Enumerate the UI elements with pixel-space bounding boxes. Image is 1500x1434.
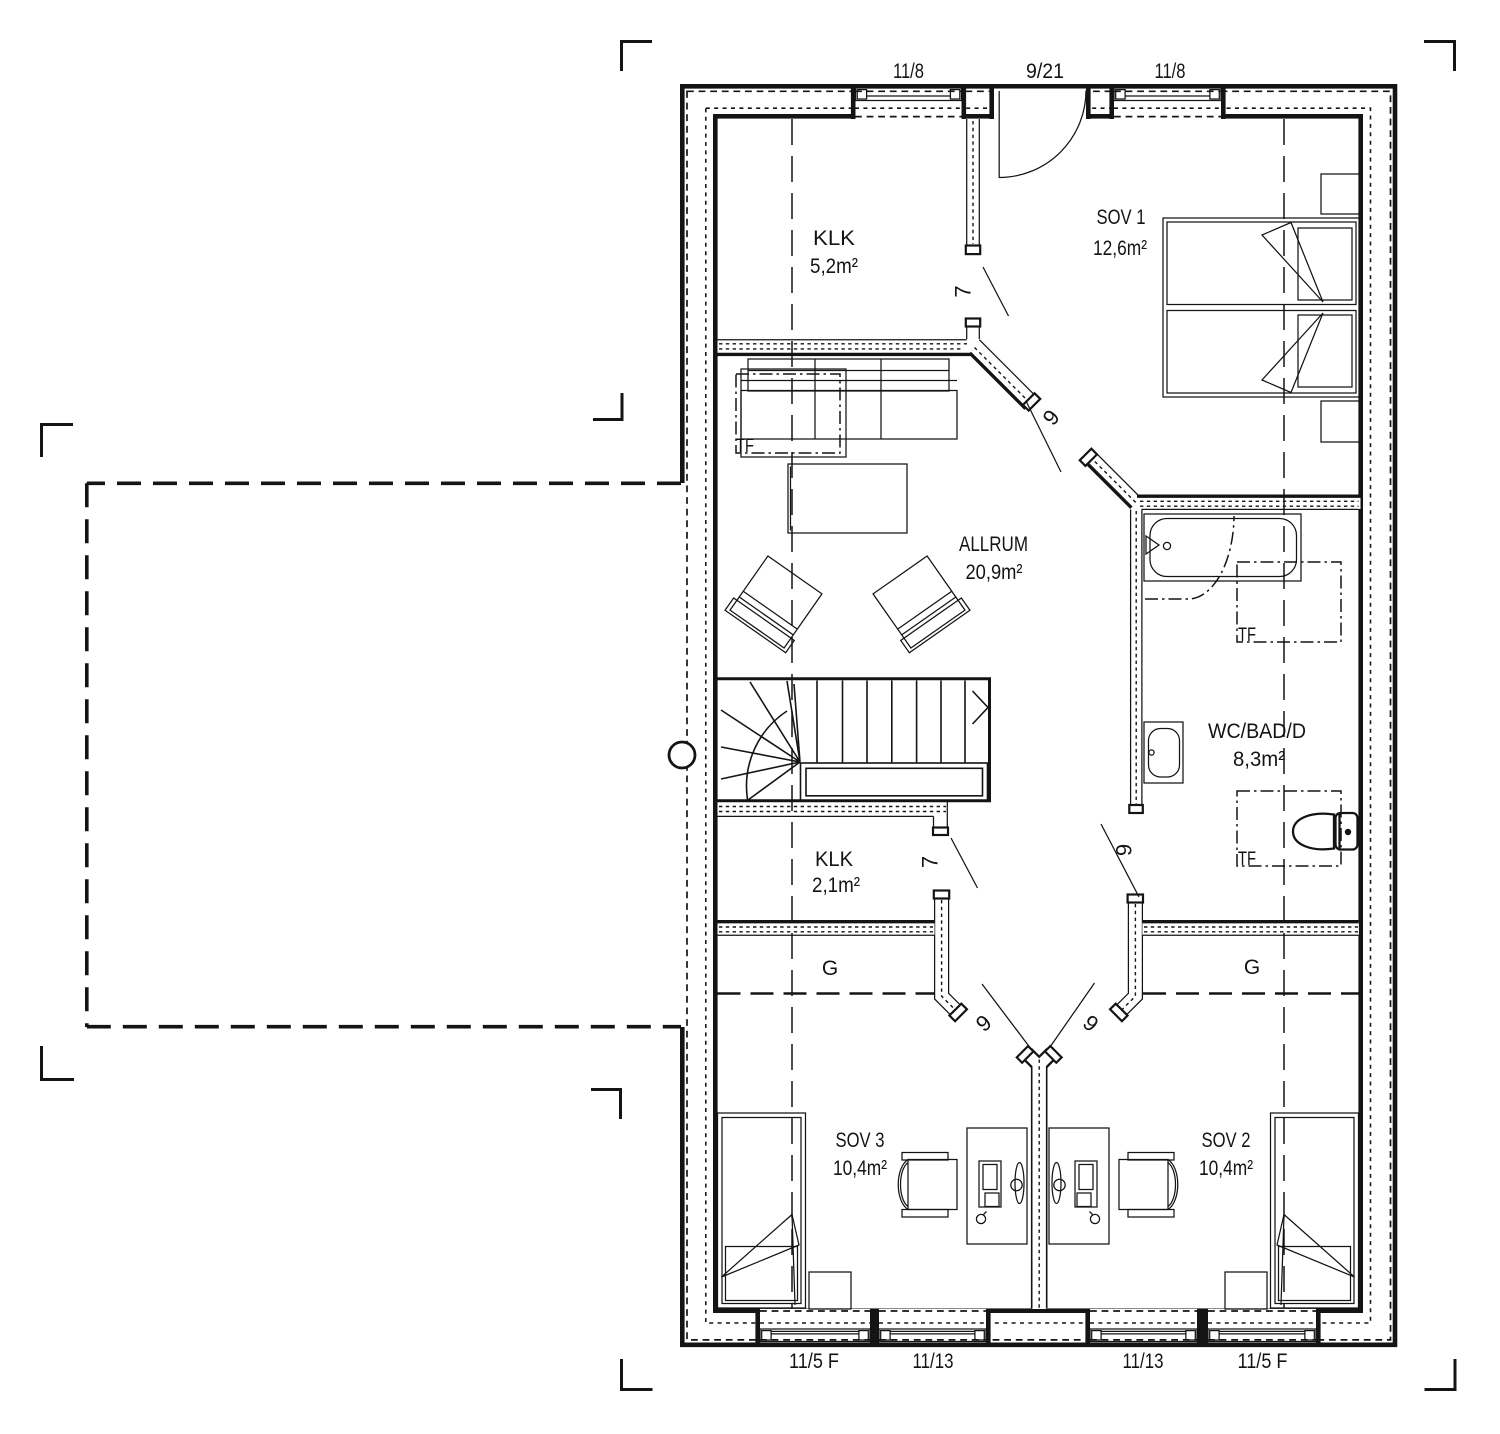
svg-text:SOV 3: SOV 3: [836, 1129, 885, 1152]
svg-text:7: 7: [951, 285, 976, 297]
svg-text:SOV 2: SOV 2: [1202, 1129, 1251, 1152]
svg-text:9: 9: [1112, 844, 1137, 856]
svg-text:KLK: KLK: [815, 848, 853, 871]
svg-text:9/21: 9/21: [1026, 60, 1064, 83]
svg-text:ALLRUM: ALLRUM: [959, 533, 1028, 556]
svg-text:11/13: 11/13: [1123, 1350, 1164, 1373]
svg-text:7: 7: [918, 856, 943, 868]
svg-text:TF: TF: [736, 436, 754, 457]
svg-text:11/5 F: 11/5 F: [1238, 1350, 1288, 1373]
svg-text:5,2m²: 5,2m²: [810, 255, 858, 278]
svg-text:2,1m²: 2,1m²: [812, 874, 860, 897]
svg-text:KLK: KLK: [813, 227, 855, 250]
svg-text:8,3m²: 8,3m²: [1233, 748, 1285, 771]
svg-text:20,9m²: 20,9m²: [966, 561, 1023, 584]
svg-text:12,6m²: 12,6m²: [1093, 237, 1147, 260]
svg-text:10,4m²: 10,4m²: [1199, 1157, 1253, 1180]
svg-text:11/5 F: 11/5 F: [789, 1350, 839, 1373]
svg-text:WC/BAD/D: WC/BAD/D: [1208, 720, 1306, 743]
svg-text:11/8: 11/8: [1155, 60, 1186, 83]
svg-text:G: G: [822, 957, 838, 980]
svg-text:TF: TF: [1238, 625, 1256, 646]
svg-text:11/13: 11/13: [913, 1350, 954, 1373]
svg-text:G: G: [1244, 956, 1260, 979]
svg-text:SOV 1: SOV 1: [1097, 206, 1146, 229]
svg-text:11/8: 11/8: [893, 60, 924, 83]
svg-text:TF: TF: [1238, 849, 1256, 870]
svg-text:10,4m²: 10,4m²: [833, 1157, 887, 1180]
